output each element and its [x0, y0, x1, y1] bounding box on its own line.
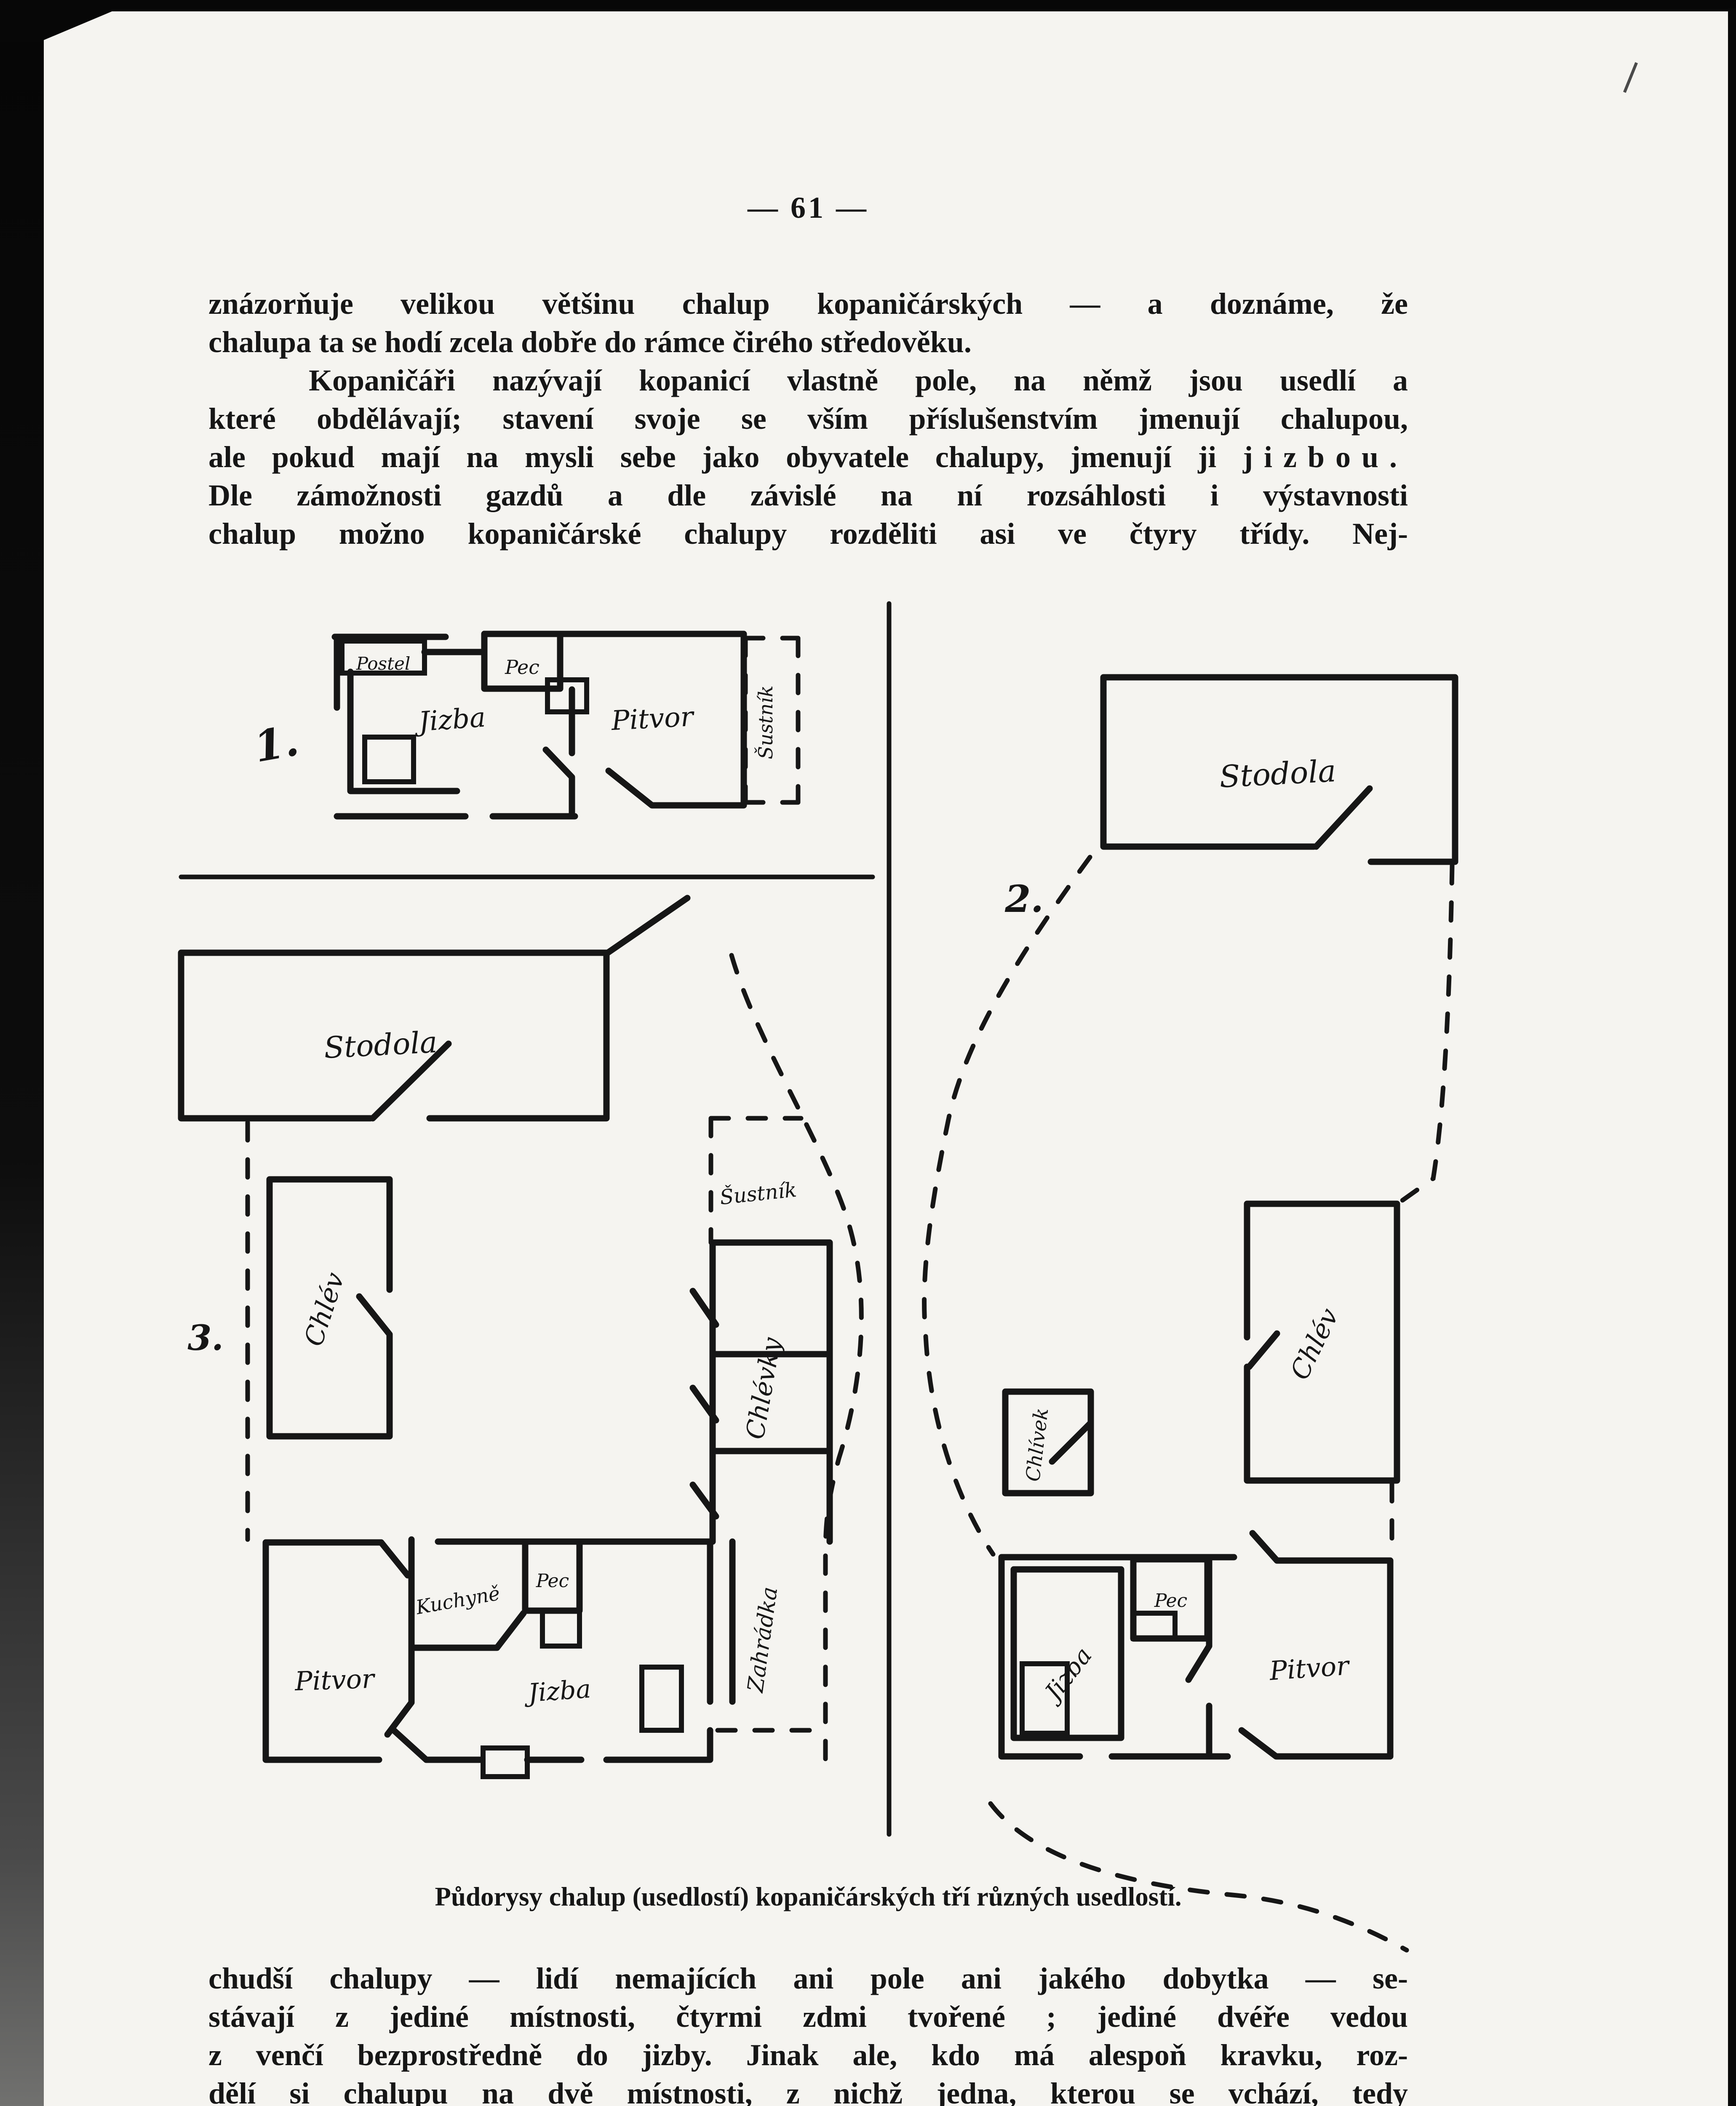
text-line: stávají z jediné místnosti, čtyrmi zdmi …	[208, 1998, 1408, 2036]
plan3-barn-walls	[181, 898, 687, 1118]
text-line: chalup možno kopaničárské chalupy rozděl…	[208, 515, 1408, 553]
label-plan1-sustnik: Šustník	[754, 685, 777, 759]
text-line: které obdělávají; stavení svoje se vším …	[208, 400, 1408, 438]
text-line: z venčí bezprostředně do jizby. Jinak al…	[208, 2036, 1408, 2074]
scan-corner-blob	[0, 0, 139, 42]
label-plan3-pec: Pec	[536, 1570, 569, 1592]
figure-caption: Půdorysy chalup (usedlostí) kopaničárský…	[208, 1882, 1408, 1912]
text-line: znázorňuje velikou většinu chalup kopani…	[208, 285, 1408, 323]
label-plan2-stodola: Stodola	[1218, 753, 1337, 794]
label-plan3-number: 3.	[187, 1318, 224, 1358]
scan-right-edge	[1728, 8, 1736, 2106]
text-line: ale pokud mají na mysli sebe jako obyvat…	[208, 438, 1408, 476]
plan3-stove-sub-box	[542, 1611, 580, 1646]
figure-floorplans: 1. 2. 3. Postel Pec Jizba Pitvor Šustník…	[160, 594, 1668, 1984]
scanned-book-page: { "colors": { "paper": "#f5f4f0", "ink":…	[0, 0, 1736, 2106]
label-plan3-kuchyne: Kuchyně	[414, 1582, 502, 1619]
label-plan3-pitvor: Pitvor	[294, 1663, 376, 1697]
text-line: dělí si chalupu na dvě místnosti, z nich…	[208, 2074, 1408, 2106]
scan-gutter-shadow	[0, 0, 44, 2106]
plan1-stove-sub-box	[548, 680, 587, 712]
plan3-porch-box	[483, 1748, 527, 1777]
scan-top-edge	[0, 0, 1736, 11]
plan3-house-walls	[266, 1539, 732, 1760]
label-plan2-pec: Pec	[1154, 1590, 1187, 1612]
text-line: Dle zámožnosti gazdů a dle závislé na ní…	[208, 476, 1408, 515]
label-plan2-chlev: Chlév	[1284, 1303, 1345, 1384]
label-plan2-chlivek: Chlívek	[1021, 1407, 1053, 1483]
body-paragraph-2: chudší chalupy — lidí nemajících ani pol…	[208, 1959, 1408, 2106]
plan1-window-box	[365, 737, 414, 782]
page-number: — 61 —	[208, 190, 1408, 225]
label-plan3-chlev: Chlév	[298, 1269, 350, 1350]
label-plan2-number: 2.	[1004, 877, 1044, 921]
label-plan3-chlevky: Chlévky	[740, 1335, 787, 1442]
label-plan2-pitvor: Pitvor	[1268, 1650, 1351, 1686]
plan3-window-box	[642, 1667, 681, 1730]
text-line: Kopaničáři nazývají kopanicí vlastně pol…	[208, 361, 1408, 400]
plan2-stove-sub-box	[1133, 1613, 1175, 1638]
text-line: chudší chalupy — lidí nemajících ani pol…	[208, 1959, 1408, 1998]
label-plan1-postel: Postel	[356, 653, 411, 674]
label-plan3-sustnik: Šustník	[718, 1177, 798, 1210]
pen-slash-artifact	[1623, 62, 1638, 93]
label-plan1-jizba: Jizba	[413, 702, 487, 738]
label-plan3-jizba: Jizba	[523, 1674, 592, 1708]
label-plan3-zahradka: Zahrádka	[743, 1585, 783, 1695]
label-plan3-stodola: Stodola	[323, 1025, 438, 1065]
label-plan1-pec: Pec	[505, 656, 539, 679]
label-plan1-pitvor: Pitvor	[610, 701, 696, 737]
text-run: ale pokud mají na mysli sebe jako obyvat…	[208, 440, 1243, 474]
body-paragraph-1: znázorňuje velikou většinu chalup kopani…	[208, 285, 1408, 553]
label-plan1-number: 1.	[250, 715, 302, 772]
emphasized-word: jizbou.	[1243, 440, 1408, 474]
